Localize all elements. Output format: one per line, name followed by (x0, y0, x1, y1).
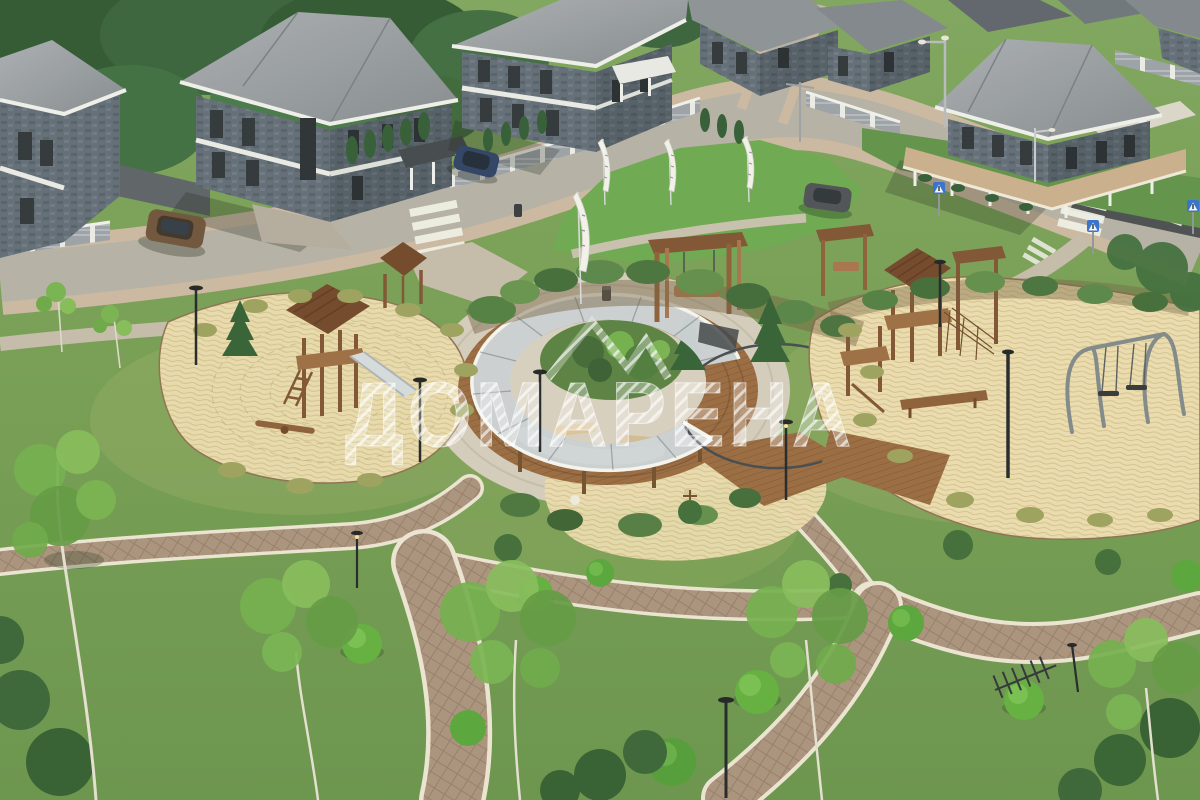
watermark-text: ДОМАРЕНА (345, 364, 855, 466)
aerial-render-image: ДОМАРЕНА (0, 0, 1200, 800)
